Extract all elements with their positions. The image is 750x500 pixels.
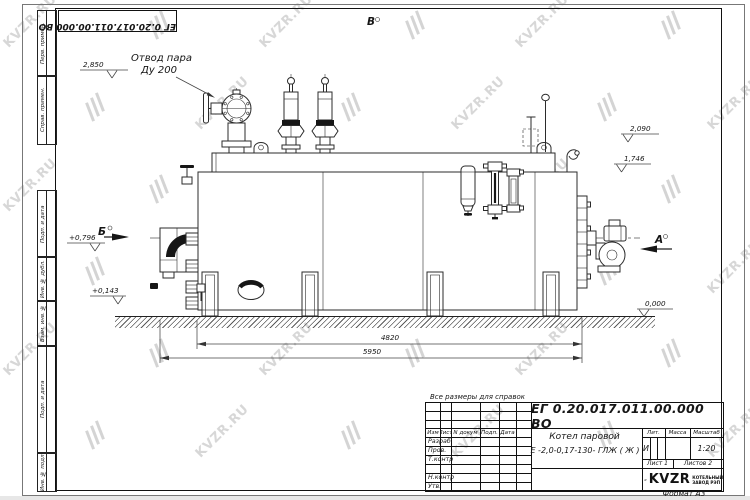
margin-box-podp-data-1: Подп. и дата (37, 190, 57, 258)
level-mark-1746: 1,746 (614, 154, 651, 172)
page-edge (0, 496, 750, 500)
level-1746-label: 1,746 (624, 154, 645, 163)
margin-box-perv-primen: Перв. примен. (37, 10, 57, 77)
steam-note-line1: Отвод пара (131, 53, 192, 64)
col-header-podp: Подп. (480, 428, 499, 437)
company-logo: KVZR КОТЕЛЬНЫЙ ЗАВОД РЭП (644, 468, 723, 491)
level-0143-label: +0,143 (92, 286, 119, 295)
row-tkontr: Т.контр (428, 455, 452, 464)
level-2090-label: 2,090 (630, 124, 651, 133)
lit-value: И (642, 437, 650, 459)
level-0796-label: +0,796 (69, 233, 96, 242)
corner-stamp: ЕГ 0.20.017.011.00.000 ВО (58, 10, 177, 32)
steam-outlet-valve (204, 90, 252, 153)
margin-box-inv-dubl: Инв. № дубл. (37, 256, 57, 302)
row-nkontr: Н.контр (428, 473, 452, 482)
row-utv: Утв. (428, 482, 452, 491)
level-2850-label: 2,850 (83, 60, 104, 69)
col-header-izm: Изм (426, 428, 440, 437)
spring-logo-icon (644, 473, 647, 487)
col-header-ndoc: N докум (451, 428, 480, 437)
svg-text:Б: Б (98, 226, 106, 238)
sheets-total: Листов 2 (673, 459, 723, 468)
level-mark-0000: 0,000 (637, 299, 673, 317)
view-label-v-top: В (367, 16, 380, 28)
doc-number: ЕГ 0.20.017.011.00.000 ВО (531, 403, 723, 428)
margin-box-vzam-inv: Взам. инв. № (37, 300, 57, 347)
reference-note: Все размеры для справок (430, 393, 525, 401)
safety-valve-2 (312, 78, 338, 154)
dim-4820-label: 4820 (381, 333, 400, 342)
product-title-line2: Е -2,0-0,17-130- ГЛЖ ( Ж ) (529, 444, 641, 456)
scale-value: 1:20 (690, 437, 723, 459)
logo-subtitle-2: ЗАВОД РЭП (692, 480, 723, 485)
col-header-list: Лист (440, 428, 451, 437)
view-label-a-right: А (640, 234, 672, 253)
dimension-5950: 5950 (160, 320, 582, 363)
margin-box-podp-data-2: Подп. и дата (37, 345, 57, 454)
rear-flange-and-pump (577, 196, 626, 288)
level-mark-2850: 2,850 (80, 60, 128, 78)
boiler-body (198, 153, 577, 310)
level-mark-2090: 2,090 (621, 124, 659, 142)
sheet-number: Лист 1 (642, 459, 673, 468)
svg-text:В: В (367, 16, 375, 28)
steam-outlet-note: Отвод пара Ду 200 (131, 53, 215, 98)
dim-5950-label: 5950 (363, 347, 382, 356)
row-prov: Пров. (428, 446, 452, 455)
steam-note-line2: Ду 200 (140, 65, 177, 76)
mass-header: Масса (665, 428, 690, 437)
view-label-b-left: Б (98, 226, 129, 241)
margin-box-inv-podl: Инв. № подл. (37, 452, 57, 492)
logo-text: KVZR (649, 472, 691, 487)
margin-box-sprav: Справ. примен. (37, 75, 57, 145)
dimension-4820: 4820 (197, 318, 582, 363)
level-mark-0143: +0,143 (90, 286, 126, 304)
title-block: ЕГ 0.20.017.011.00.000 ВО Изм Лист N док… (425, 402, 724, 492)
svg-text:А: А (654, 234, 663, 246)
drawing-sheet: KVZR.RUKVZR.RUKVZR.RUKVZR.RUKVZR.RUKVZR.… (0, 0, 750, 500)
scale-header: Масштаб (690, 428, 723, 437)
lit-header: Лит. (642, 428, 665, 437)
row-razrab: Разраб. (428, 437, 452, 446)
col-header-data: Дата (499, 428, 516, 437)
safety-valve-1 (278, 78, 304, 154)
product-title-line1: Котел паровой (532, 430, 637, 443)
corner-stamp-text: ЕГ 0.20.017.011.00.000 ВО (59, 11, 176, 31)
level-0000-label: 0,000 (645, 299, 666, 308)
